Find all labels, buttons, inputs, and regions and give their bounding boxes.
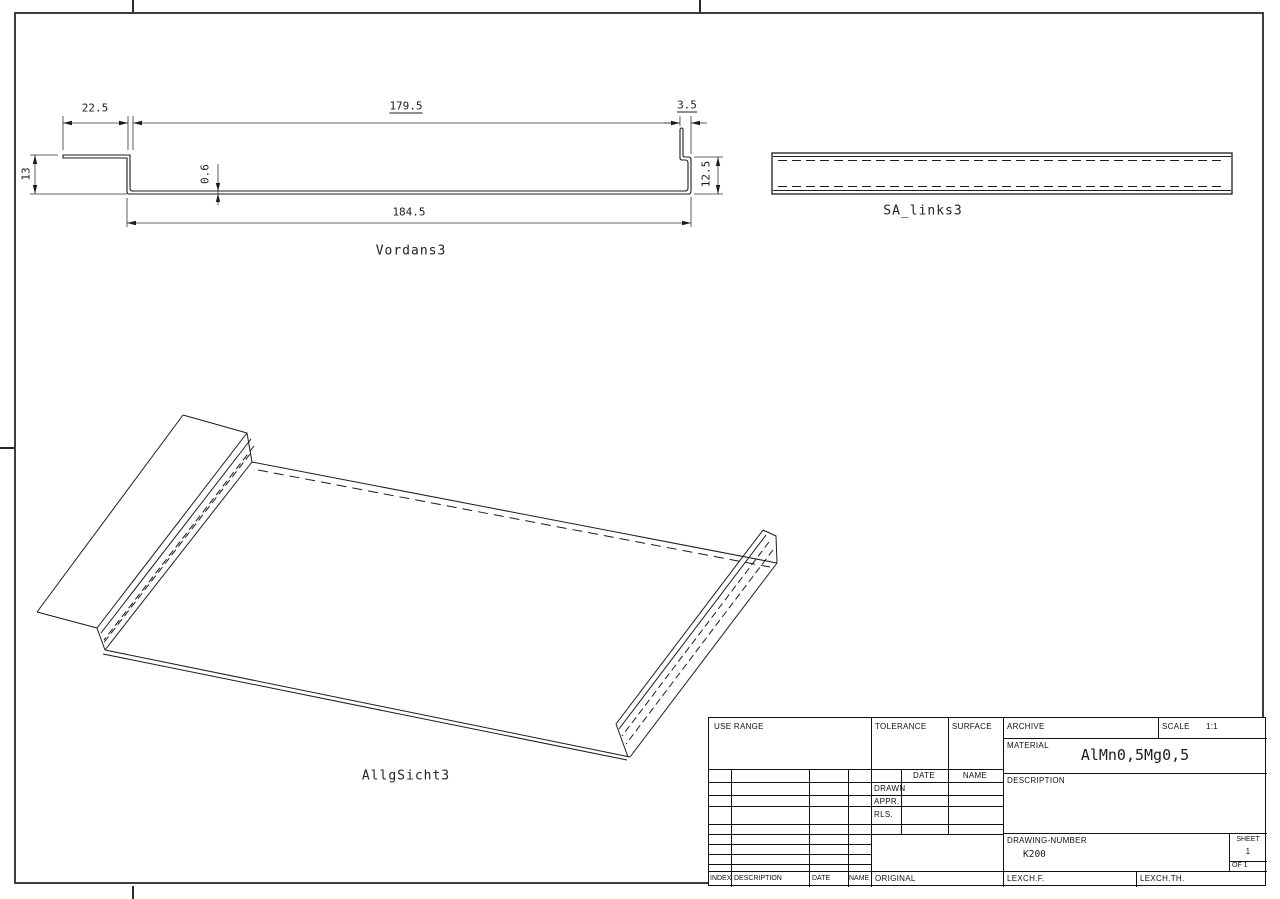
tb-line	[709, 824, 1003, 825]
index-label: INDEX	[710, 875, 731, 882]
tb-line	[1003, 718, 1004, 887]
front-view-dimension-arrows	[33, 121, 720, 225]
front-view-profile	[63, 128, 691, 194]
tb-line	[1003, 833, 1267, 834]
sheet-label: SHEET	[1236, 836, 1259, 843]
material-label: MATERIAL	[1007, 741, 1049, 750]
sheet-of-label: OF 1	[1232, 862, 1248, 869]
iso-view-label: AllgSicht3	[362, 769, 450, 784]
tb-line	[1229, 833, 1230, 871]
iso-view-linework	[37, 415, 777, 760]
tb-line	[948, 718, 949, 834]
tb-line	[709, 854, 871, 855]
side-view-linework	[772, 153, 1232, 194]
drawing-number-label: DRAWING-NUMBER	[1007, 836, 1087, 845]
original-label: ORIGINAL	[875, 874, 916, 883]
dim-lip-offset: 3.5	[677, 100, 697, 113]
tb-line	[1136, 871, 1137, 887]
appr-label: APPR.	[874, 797, 900, 806]
tb-line	[709, 795, 1003, 796]
tb-line	[1003, 738, 1267, 739]
rev-date-label: DATE	[812, 875, 830, 882]
tb-line	[709, 864, 871, 865]
tb-line	[709, 834, 1003, 835]
scale-value: 1:1	[1206, 722, 1218, 731]
drawing-number-value: K200	[1023, 849, 1046, 860]
dim-top-length: 179.5	[389, 101, 422, 114]
tb-line	[709, 806, 1003, 807]
side-view-label: SA_links3	[883, 204, 962, 219]
date-header-label: DATE	[913, 771, 935, 780]
front-view-dimension-lines	[30, 116, 723, 227]
tb-line	[1003, 773, 1267, 774]
dim-flange-width: 22.5	[82, 103, 109, 114]
tb-line	[709, 769, 1003, 770]
rls-label: RLS.	[874, 810, 893, 819]
archive-label: ARCHIVE	[1007, 722, 1045, 731]
material-value: AlMn0,5Mg0,5	[1081, 746, 1189, 764]
tb-line	[709, 844, 871, 845]
lexchf-label: LEXCH.F.	[1007, 874, 1045, 883]
sheet-value: 1	[1246, 847, 1251, 856]
cad-drawing-sheet: 22.5 179.5 3.5 13 0.6 184.5 12.5 Vordans…	[0, 0, 1280, 899]
dim-lip-height: 12.5	[701, 161, 712, 188]
scale-label: SCALE	[1162, 722, 1190, 731]
surface-label: SURFACE	[952, 722, 992, 731]
dim-wall-height: 13	[21, 167, 32, 180]
lexchth-label: LEXCH.TH.	[1140, 874, 1185, 883]
tb-line	[709, 782, 1003, 783]
tb-line	[848, 769, 849, 887]
tb-line	[1158, 718, 1159, 738]
description-label: DESCRIPTION	[1007, 776, 1065, 785]
tb-line	[731, 769, 732, 887]
rev-description-label: DESCRIPTION	[734, 875, 782, 882]
tb-line	[809, 769, 810, 887]
tolerance-label: TOLERANCE	[875, 722, 926, 731]
drawn-label: DRAWN	[874, 784, 905, 793]
tb-line	[871, 718, 872, 887]
tb-line	[709, 871, 1267, 872]
front-view-label: Vordans3	[376, 244, 447, 259]
dim-total-length: 184.5	[392, 207, 425, 218]
use-range-label: USE RANGE	[714, 722, 764, 731]
dim-thickness: 0.6	[200, 164, 211, 184]
title-block: USE RANGE TOLERANCE SURFACE ARCHIVE SCAL…	[708, 717, 1266, 886]
name-header-label: NAME	[963, 771, 987, 780]
rev-name-label: NAME	[849, 875, 869, 882]
